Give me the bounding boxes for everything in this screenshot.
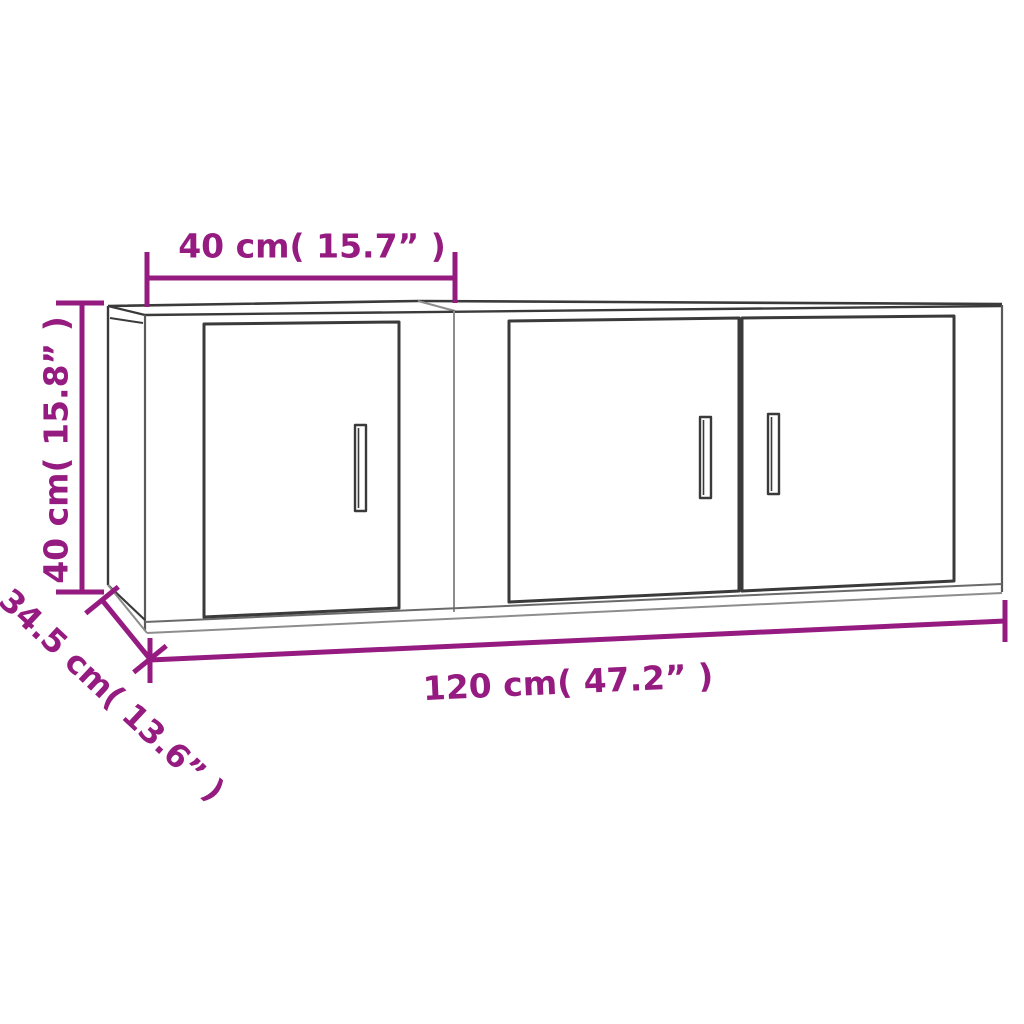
left-cabinet-door [204,322,399,617]
right-cabinet [509,316,954,602]
cabinet-top-seam [418,301,455,311]
depth-dimension-line [102,600,150,659]
product-dimension-diagram: 40 cm( 15.7” ) 40 cm( 15.8” ) 120 cm( 47… [0,0,1024,1024]
left-door-handle [355,425,366,511]
right-door-handle [768,414,779,494]
diagram-canvas [0,0,1024,1024]
cabinet-top-back-edge [108,301,1002,306]
cabinet-line-art [108,301,1002,633]
left-panel-top-inner-edge [110,318,143,323]
dimension-label-top-width: 40 cm( 15.7” ) [178,227,446,266]
cabinet-top-front-edge [145,306,1002,315]
middle-door-handle [700,417,711,498]
dimension-label-height: 40 cm( 15.8” ) [37,316,76,584]
left-cabinet [204,322,399,617]
left-panel-top-edge [108,306,145,315]
